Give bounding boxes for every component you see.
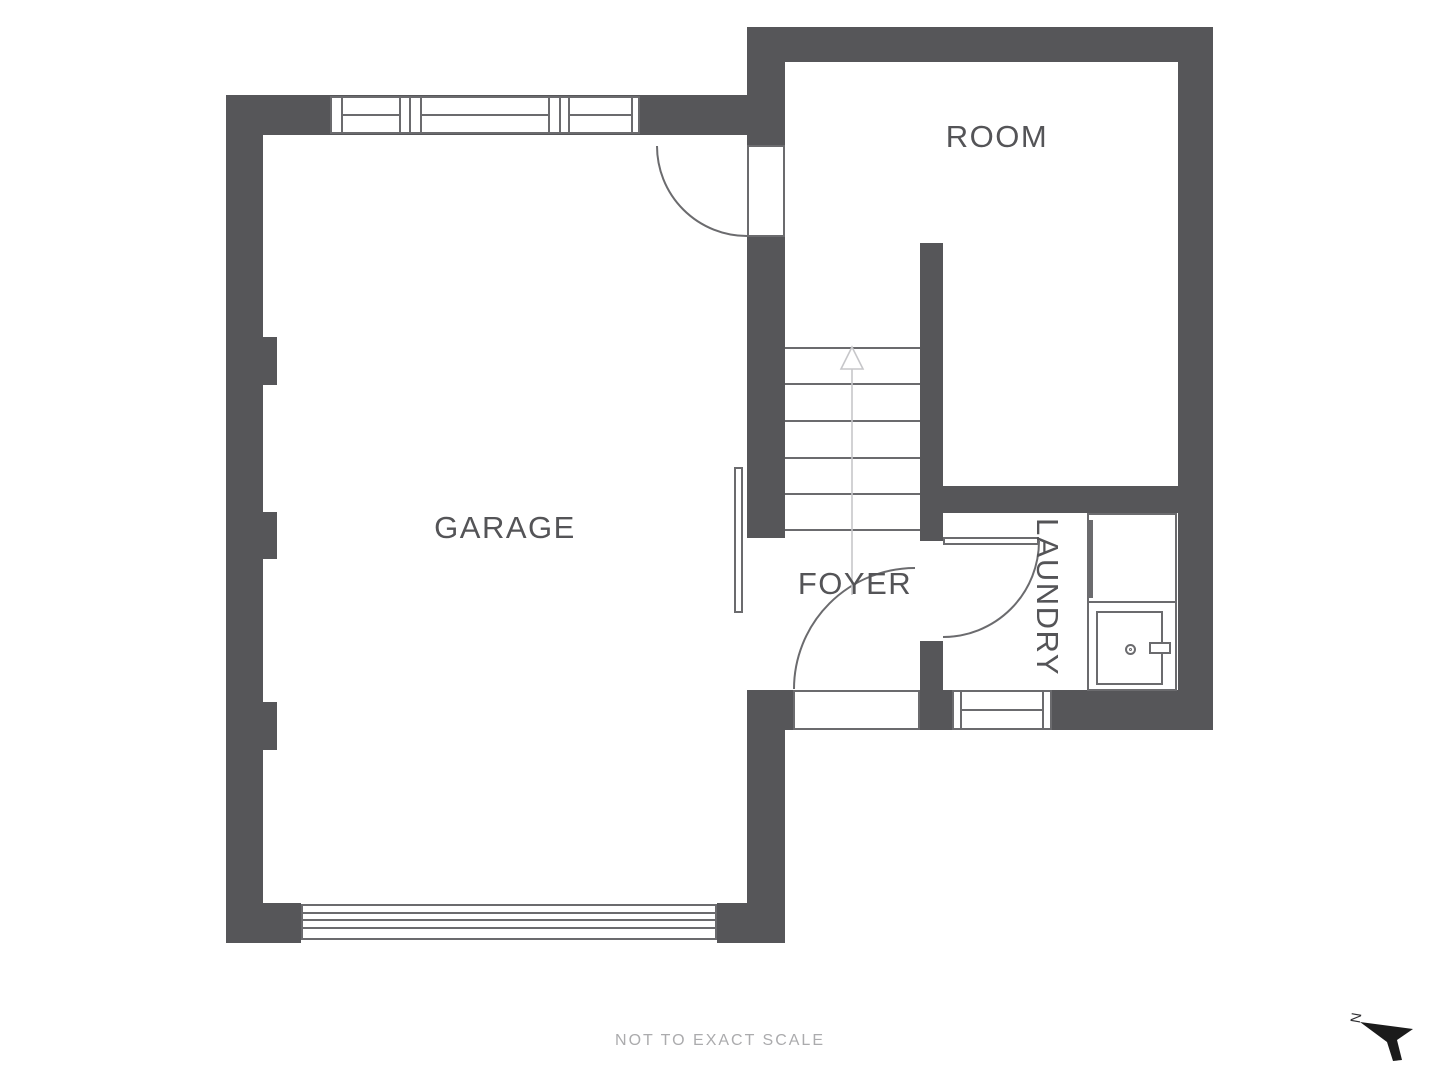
room-label-room: ROOM xyxy=(946,119,1048,155)
north-label: N xyxy=(1347,1011,1365,1024)
room-label-laundry: LAUNDRY xyxy=(1029,518,1065,676)
room-label-garage: GARAGE xyxy=(434,510,576,546)
garage-hall-door-swing-arc xyxy=(657,146,747,236)
room-label-foyer: FOYER xyxy=(798,566,912,602)
plan-annotation-overlay: N xyxy=(0,0,1440,1080)
scale-disclaimer: NOT TO EXACT SCALE xyxy=(615,1032,825,1050)
north-arrow-icon xyxy=(1360,1022,1413,1061)
laundry-door-swing-arc xyxy=(943,541,1039,637)
stair-direction-arrow-head xyxy=(841,347,863,369)
floor-plan-canvas: N GARAGE ROOM FOYER LAUNDRY NOT TO EXACT… xyxy=(0,0,1440,1080)
